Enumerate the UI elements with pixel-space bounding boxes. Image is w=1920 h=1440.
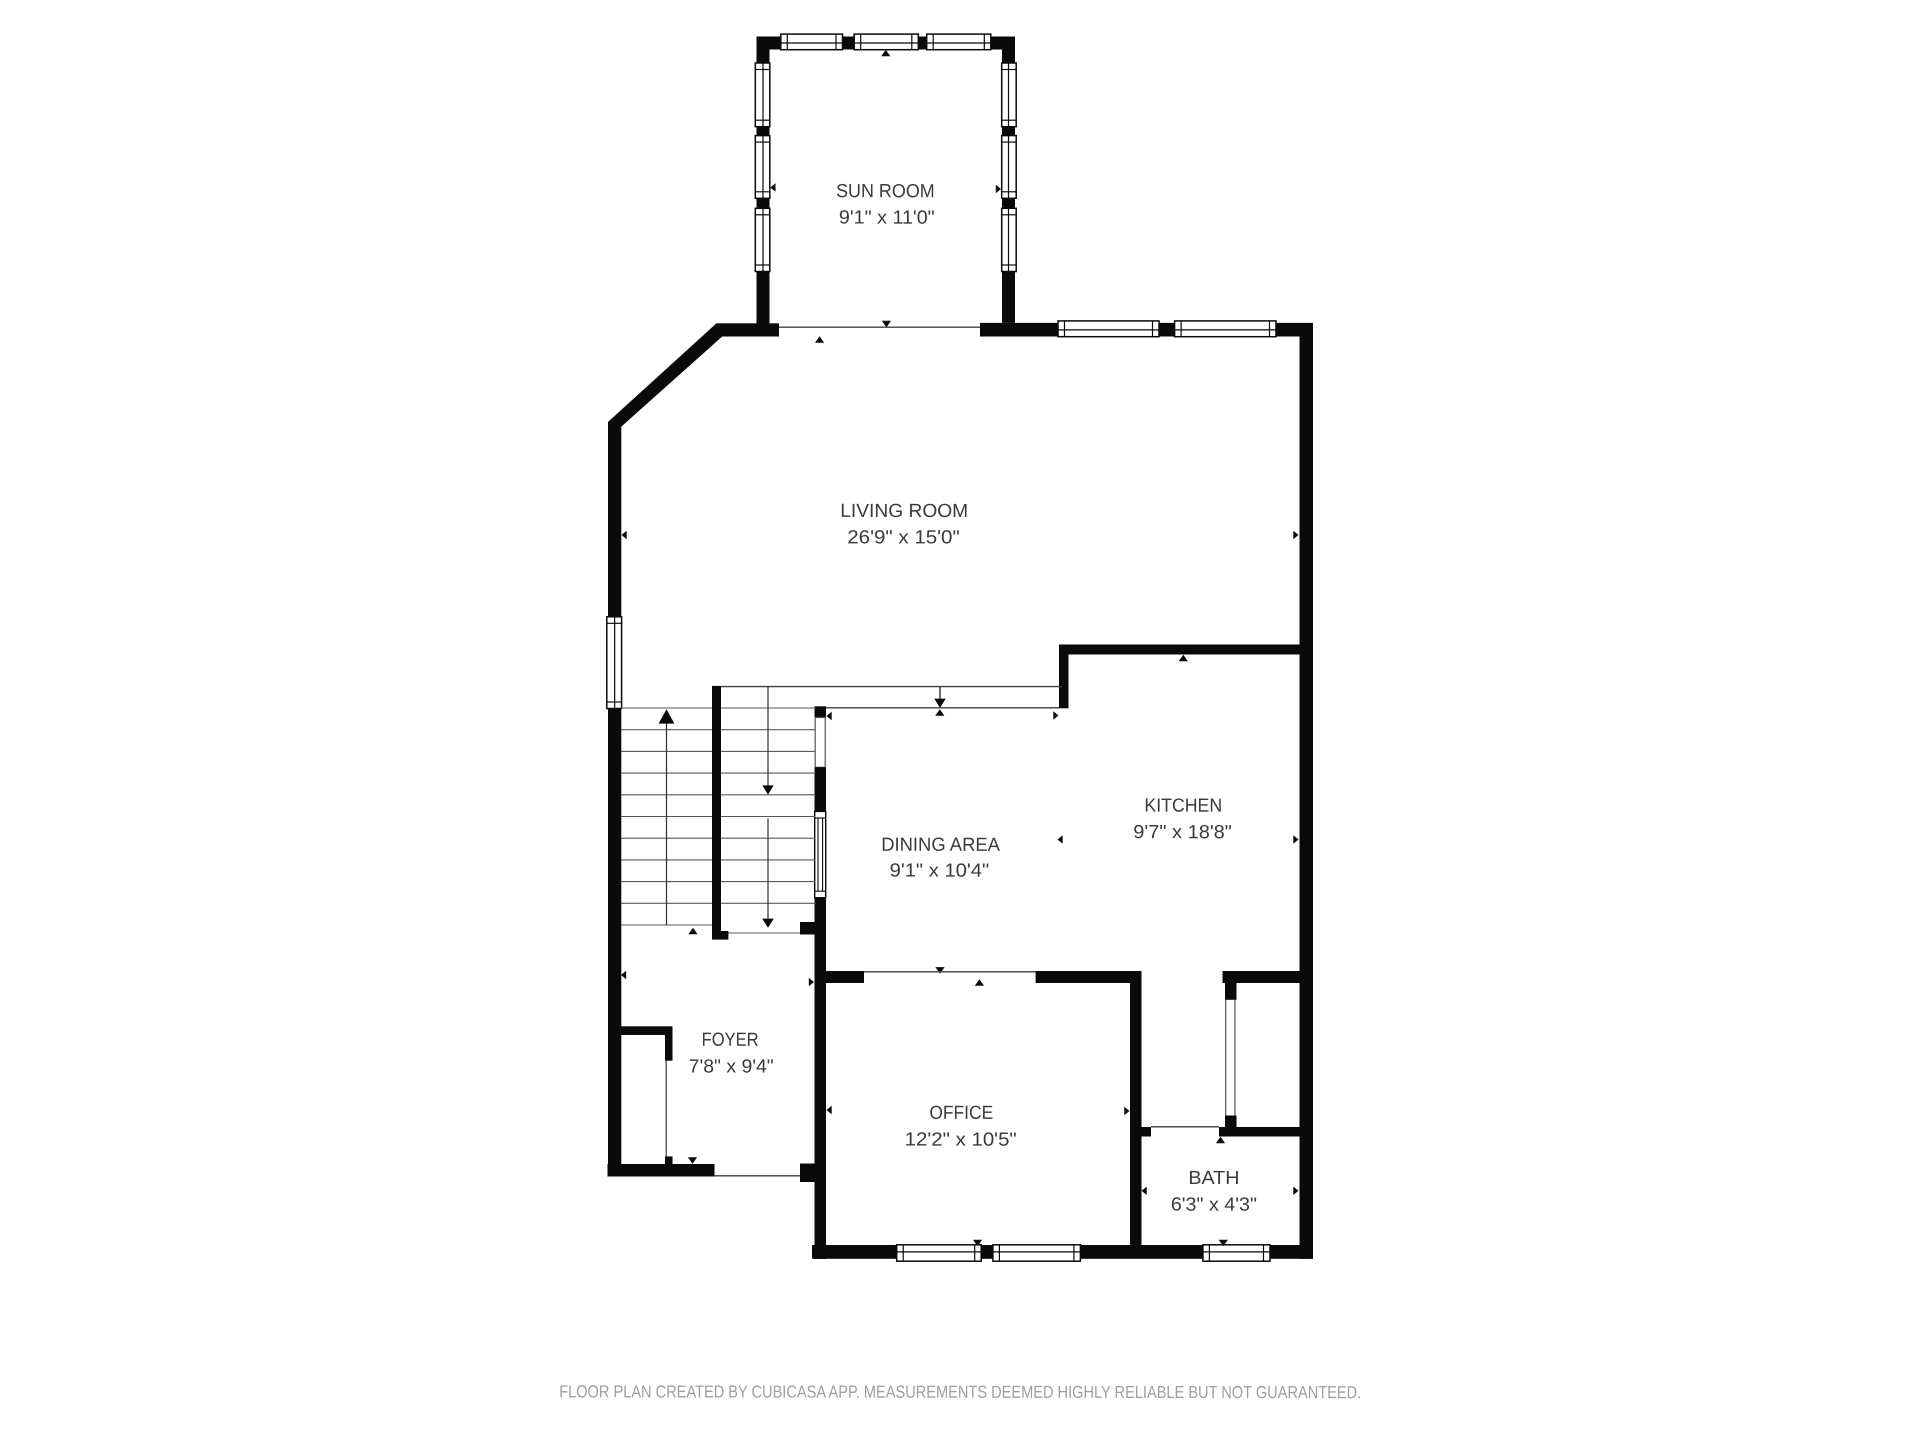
svg-text:KITCHEN: KITCHEN (1144, 796, 1222, 817)
svg-text:9'7" x 18'8": 9'7" x 18'8" (1133, 822, 1232, 843)
svg-text:FOYER: FOYER (702, 1030, 759, 1051)
svg-text:9'1" x 11'0": 9'1" x 11'0" (839, 208, 935, 229)
svg-text:OFFICE: OFFICE (929, 1103, 993, 1124)
svg-text:9'1" x 10'4": 9'1" x 10'4" (890, 861, 990, 882)
svg-text:BATH: BATH (1188, 1168, 1239, 1189)
svg-text:7'8" x 9'4": 7'8" x 9'4" (689, 1056, 774, 1077)
svg-text:26'9" x 15'0": 26'9" x 15'0" (847, 527, 960, 548)
svg-text:FLOOR PLAN CREATED BY CUBICASA: FLOOR PLAN CREATED BY CUBICASA APP. MEAS… (559, 1381, 1361, 1402)
svg-text:LIVING ROOM: LIVING ROOM (840, 501, 968, 522)
svg-text:SUN ROOM: SUN ROOM (836, 181, 935, 202)
svg-text:DINING AREA: DINING AREA (881, 835, 1000, 856)
svg-text:12'2" x 10'5": 12'2" x 10'5" (905, 1130, 1017, 1151)
svg-text:6'3" x 4'3": 6'3" x 4'3" (1171, 1195, 1257, 1216)
